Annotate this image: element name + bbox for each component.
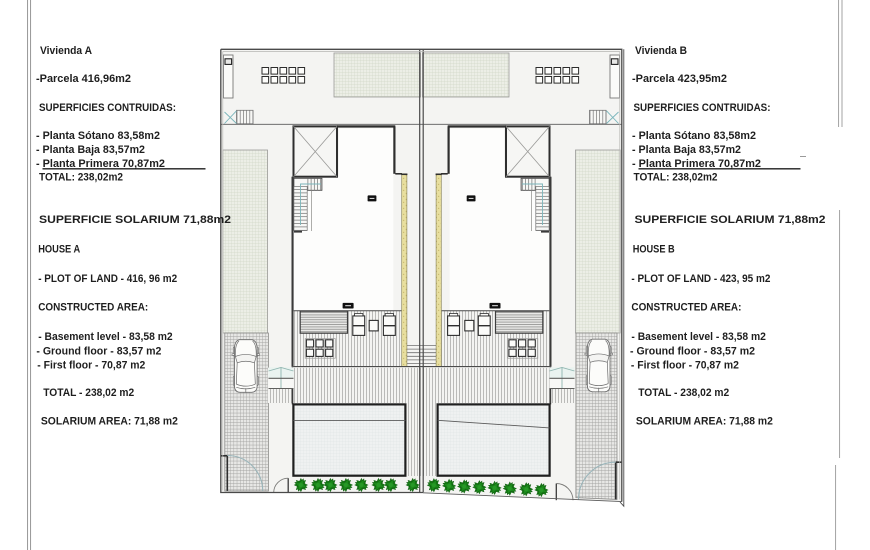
svg-text:TOTAL - 238,02 m2: TOTAL - 238,02 m2 — [638, 387, 729, 399]
svg-text:- First floor - 70,87 m2: - First floor - 70,87 m2 — [37, 360, 145, 372]
svg-text:- PLOT OF LAND - 423, 95 m2: - PLOT OF LAND - 423, 95 m2 — [631, 273, 770, 285]
svg-text:- Ground floor - 83,57 m2: - Ground floor - 83,57 m2 — [630, 346, 755, 358]
svg-text:- Planta Baja 83,57m2: - Planta Baja 83,57m2 — [632, 144, 741, 156]
svg-text:SUPERFICIE SOLARIUM 71,88m2: SUPERFICIE SOLARIUM 71,88m2 — [635, 214, 826, 226]
svg-text:TOTAL - 238,02 m2: TOTAL - 238,02 m2 — [43, 387, 134, 399]
svg-text:- Planta Sótano 83,58m2: - Planta Sótano 83,58m2 — [36, 130, 160, 142]
svg-text:- Basement level - 83,58 m2: - Basement level - 83,58 m2 — [631, 331, 766, 343]
svg-text:- Planta Baja 83,57m2: - Planta Baja 83,57m2 — [36, 144, 145, 156]
svg-text:Vivienda A: Vivienda A — [40, 45, 92, 57]
svg-text:- Ground floor - 83,57 m2: - Ground floor - 83,57 m2 — [36, 346, 161, 358]
svg-text:- Planta Sótano 83,58m2: - Planta Sótano 83,58m2 — [632, 130, 756, 142]
svg-text:CONSTRUCTED AREA:: CONSTRUCTED AREA: — [631, 302, 741, 314]
svg-text:CONSTRUCTED AREA:: CONSTRUCTED AREA: — [38, 302, 148, 314]
svg-text:SUPERFICIES CONTRUIDAS:: SUPERFICIES CONTRUIDAS: — [39, 102, 176, 114]
svg-text:Vivienda B: Vivienda B — [635, 45, 687, 57]
svg-text:SOLARIUM AREA: 71,88 m2: SOLARIUM AREA: 71,88 m2 — [636, 416, 773, 428]
svg-text:TOTAL: 238,02m2: TOTAL: 238,02m2 — [634, 172, 718, 184]
svg-text:TOTAL: 238,02m2: TOTAL: 238,02m2 — [39, 172, 123, 184]
svg-text:- Basement level - 83,58 m2: - Basement level - 83,58 m2 — [38, 331, 173, 343]
svg-text:HOUSE B: HOUSE B — [633, 244, 675, 256]
svg-text:- PLOT OF LAND - 416, 96 m2: - PLOT OF LAND - 416, 96 m2 — [38, 273, 177, 285]
svg-text:SUPERFICIE SOLARIUM 71,88m2: SUPERFICIE SOLARIUM 71,88m2 — [39, 214, 231, 226]
svg-text:HOUSE A: HOUSE A — [38, 244, 80, 256]
svg-text:-Parcela 423,95m2: -Parcela 423,95m2 — [632, 73, 727, 85]
svg-text:SUPERFICIES CONTRUIDAS:: SUPERFICIES CONTRUIDAS: — [634, 102, 771, 114]
svg-text:SOLARIUM AREA: 71,88 m2: SOLARIUM AREA: 71,88 m2 — [41, 416, 178, 428]
svg-text:-Parcela 416,96m2: -Parcela 416,96m2 — [36, 73, 131, 85]
svg-text:- First floor - 70,87 m2: - First floor - 70,87 m2 — [631, 360, 739, 372]
